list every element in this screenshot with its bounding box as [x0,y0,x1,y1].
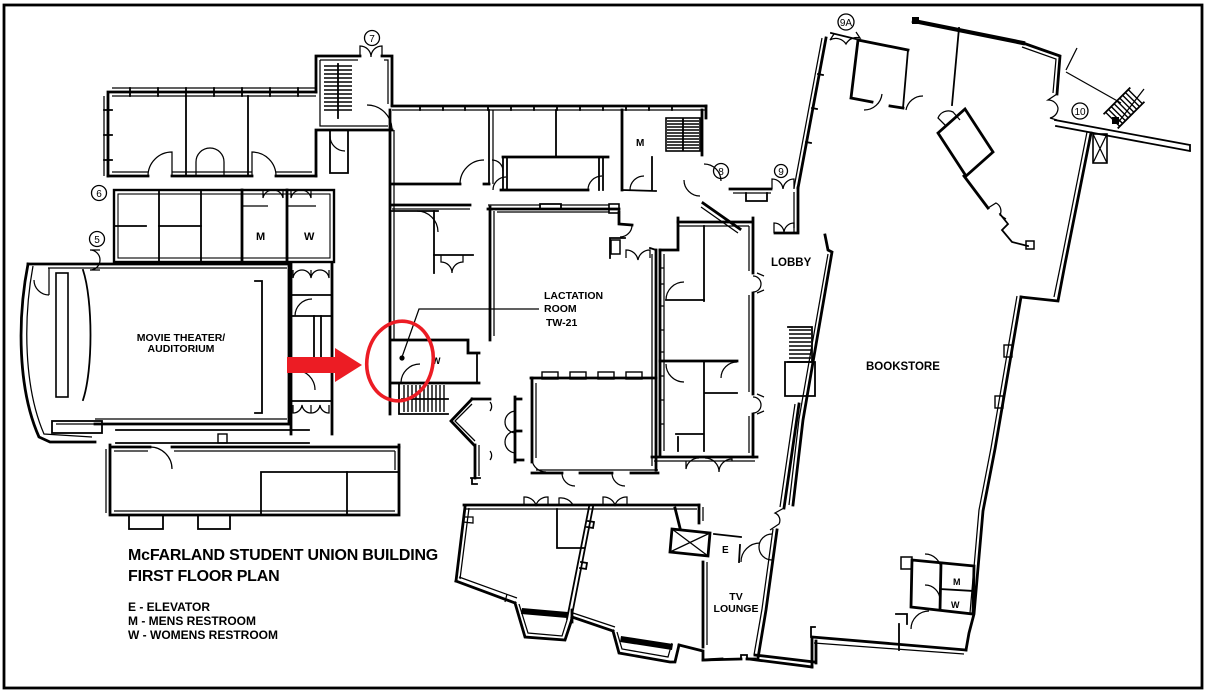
svg-text:E - ELEVATOR: E - ELEVATOR [128,600,210,614]
svg-text:M: M [256,231,265,243]
svg-text:McFARLAND STUDENT UNION BUILDI: McFARLAND STUDENT UNION BUILDING [128,547,438,564]
svg-text:TW-21: TW-21 [546,317,577,329]
svg-text:E: E [722,545,729,556]
svg-text:5: 5 [94,235,100,246]
svg-text:6: 6 [96,189,102,200]
svg-text:7: 7 [369,34,375,45]
svg-text:W: W [951,600,960,610]
svg-text:10: 10 [1074,107,1086,118]
svg-text:ROOM: ROOM [544,303,577,315]
svg-text:LOBBY: LOBBY [771,257,812,269]
svg-text:M - MENS RESTROOM: M - MENS RESTROOM [128,614,256,628]
svg-text:W - WOMENS RESTROOM: W - WOMENS RESTROOM [128,628,278,642]
svg-text:AUDITORIUM: AUDITORIUM [148,343,215,355]
svg-text:LACTATION: LACTATION [544,290,603,302]
svg-text:FIRST FLOOR PLAN: FIRST FLOOR PLAN [128,568,279,585]
svg-text:W: W [304,231,315,243]
svg-text:M: M [953,577,961,587]
svg-text:BOOKSTORE: BOOKSTORE [866,361,940,373]
svg-text:TV: TV [729,591,742,603]
svg-text:LOUNGE: LOUNGE [714,603,759,615]
svg-text:M: M [636,138,644,149]
svg-text:8: 8 [718,167,724,178]
svg-text:9: 9 [778,167,784,178]
svg-text:9A: 9A [840,18,853,29]
